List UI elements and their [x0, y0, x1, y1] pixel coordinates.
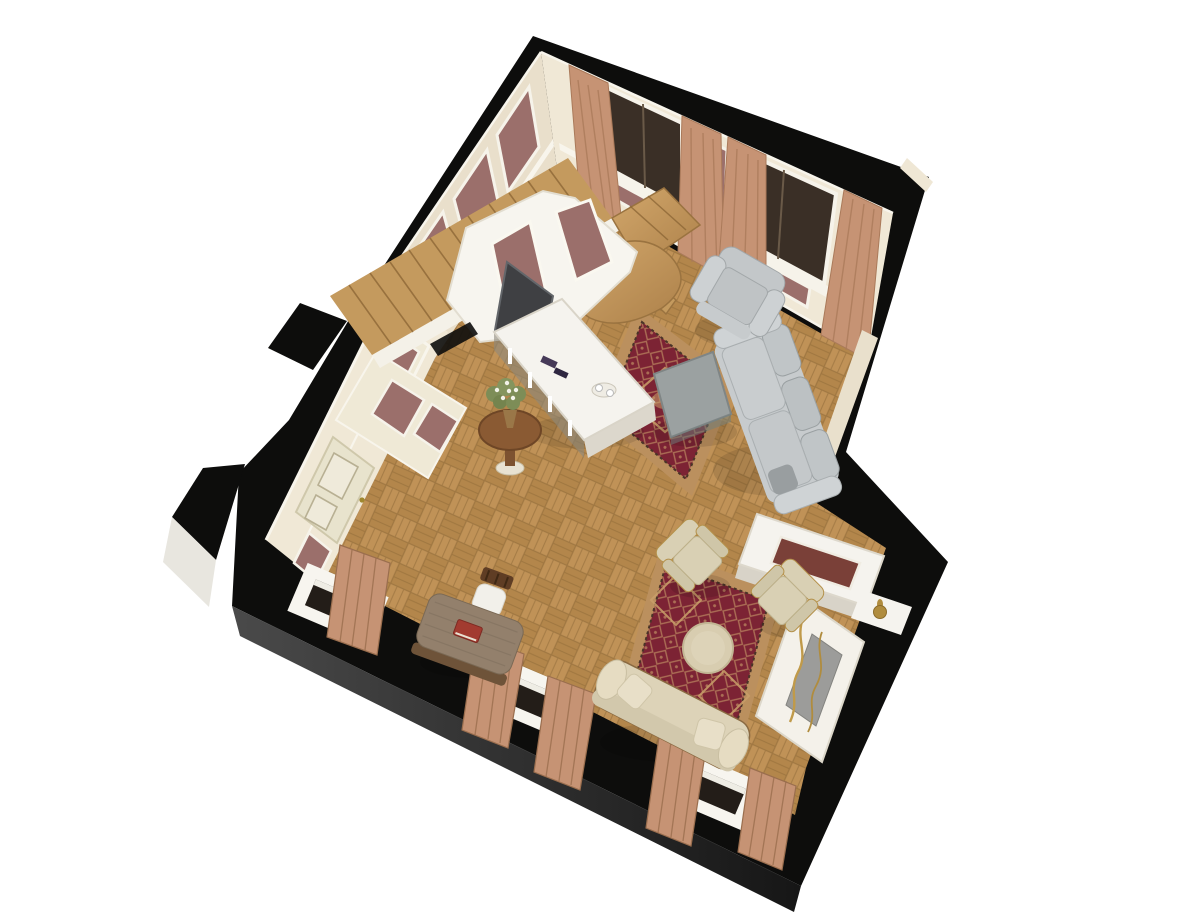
- cup: [596, 385, 603, 392]
- floorplan-render: [0, 0, 1200, 912]
- round-ottoman-top: [691, 631, 725, 665]
- door-knob: [359, 497, 364, 502]
- cup: [607, 390, 614, 397]
- decor-vase: [874, 606, 887, 619]
- render-canvas: [0, 0, 1200, 912]
